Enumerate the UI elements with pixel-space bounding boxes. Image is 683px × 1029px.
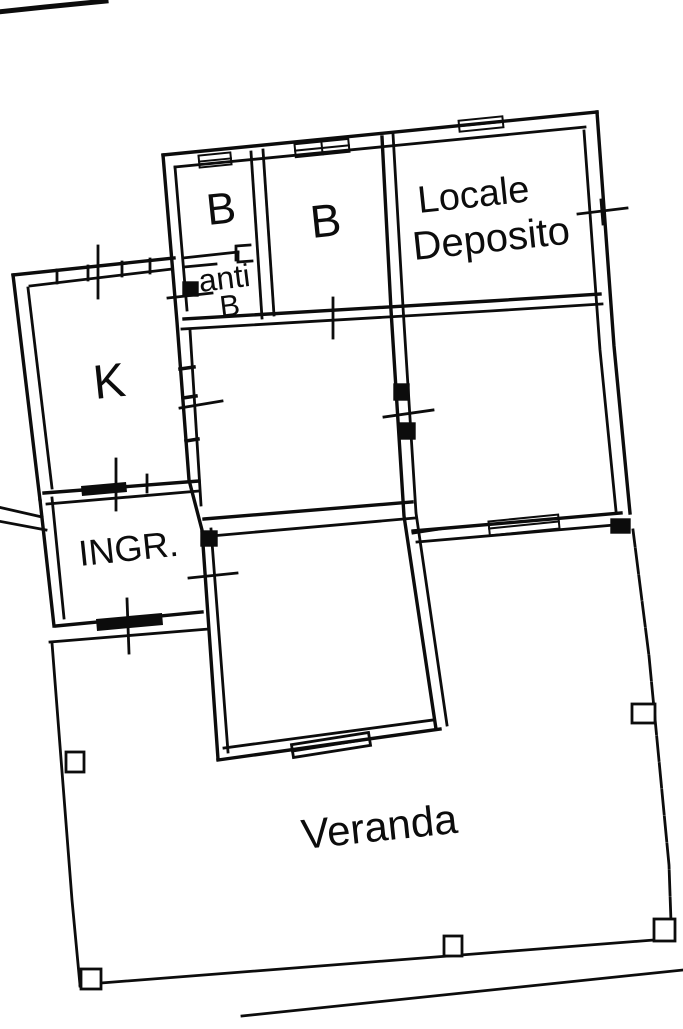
svg-text:Veranda: Veranda — [299, 795, 460, 858]
svg-text:INGR.: INGR. — [77, 523, 181, 574]
svg-text:B: B — [308, 193, 344, 248]
svg-text:K: K — [91, 354, 128, 410]
svg-text:B: B — [218, 289, 242, 324]
svg-text:B: B — [204, 183, 238, 235]
